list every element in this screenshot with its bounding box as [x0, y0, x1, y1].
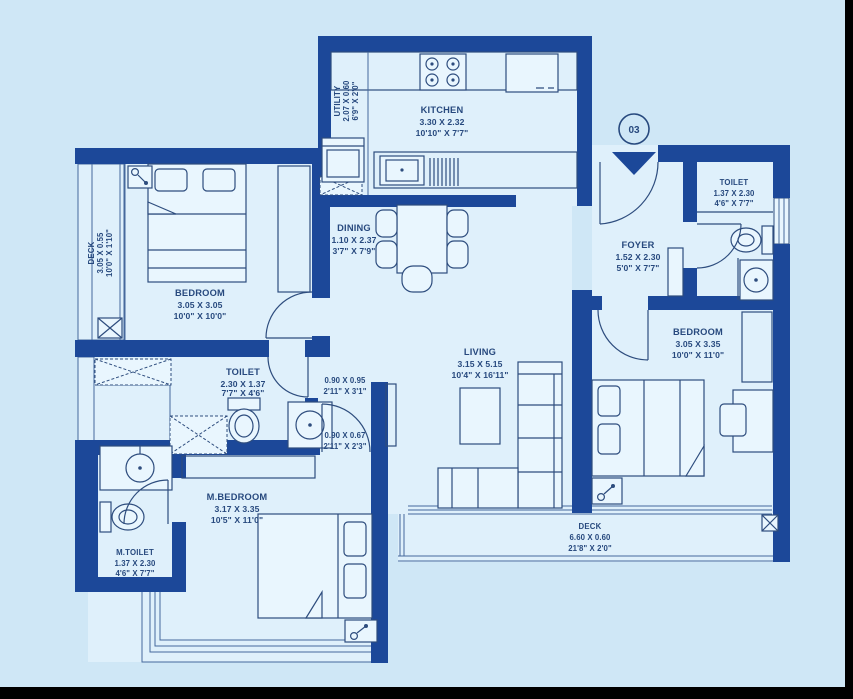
bed-icon	[148, 164, 246, 282]
label-dining: DINING 1.10 X 2.37 3'7" X 7'9"	[331, 223, 376, 256]
svg-text:M.TOILET: M.TOILET	[116, 548, 154, 557]
svg-text:BEDROOM: BEDROOM	[175, 288, 225, 298]
svg-text:1.37 X 2.30: 1.37 X 2.30	[714, 189, 756, 198]
wc-icon	[731, 226, 773, 254]
wc-icon	[228, 398, 260, 443]
wc-icon	[100, 502, 144, 532]
svg-text:6.60 X 0.60: 6.60 X 0.60	[570, 533, 612, 542]
svg-text:1.37 X 2.30: 1.37 X 2.30	[115, 559, 157, 568]
svg-text:6'9" X 2'0": 6'9" X 2'0"	[351, 81, 360, 120]
svg-text:UTILITY: UTILITY	[333, 85, 342, 116]
svg-text:TOILET: TOILET	[720, 178, 749, 187]
svg-text:10'0" X 1'10": 10'0" X 1'10"	[105, 229, 114, 277]
key-switch-icon	[128, 166, 152, 188]
washbasin-icon	[100, 446, 172, 490]
letterbox-bottom	[0, 687, 853, 699]
label-utility: UTILITY 2.07 X 0.60 6'9" X 2'0"	[333, 80, 360, 122]
svg-text:M.BEDROOM: M.BEDROOM	[207, 492, 268, 502]
unit-number: 03	[628, 125, 640, 136]
svg-text:FOYER: FOYER	[621, 240, 654, 250]
tv-unit-icon	[460, 388, 500, 444]
svg-text:2'11" X 2'3": 2'11" X 2'3"	[323, 442, 366, 451]
bed-icon	[258, 514, 372, 618]
label-toilet-mid: TOILET 2.30 X 1.37 7'7" X 4'6"	[220, 367, 265, 398]
svg-text:10'4" X 16'11": 10'4" X 16'11"	[451, 370, 508, 380]
svg-text:21'8" X 2'0": 21'8" X 2'0"	[568, 544, 612, 553]
svg-text:1.52 X 2.30: 1.52 X 2.30	[615, 252, 660, 262]
svg-text:3.05 X 3.05: 3.05 X 3.05	[177, 300, 222, 310]
key-switch-icon	[592, 478, 622, 504]
svg-text:2.07 X 0.60: 2.07 X 0.60	[342, 80, 351, 122]
svg-text:LIVING: LIVING	[464, 347, 496, 357]
toilet-right-window-icon	[774, 198, 789, 244]
floor-plan-canvas: 03	[0, 0, 853, 699]
svg-text:3.15 X 5.15: 3.15 X 5.15	[457, 359, 502, 369]
letterbox-right	[845, 0, 853, 699]
stove-icon	[420, 54, 466, 90]
label-bedroom-left: BEDROOM 3.05 X 3.05 10'0" X 10'0"	[174, 288, 227, 321]
svg-text:0.90 X 0.67: 0.90 X 0.67	[325, 431, 366, 440]
svg-text:7'7" X 4'6": 7'7" X 4'6"	[222, 388, 265, 398]
label-foyer: FOYER 1.52 X 2.30 5'0" X 7'7"	[615, 240, 660, 273]
svg-text:3'7" X 7'9": 3'7" X 7'9"	[333, 246, 376, 256]
svg-text:TOILET: TOILET	[226, 367, 260, 377]
floor-plan-svg: 03	[0, 0, 853, 699]
washing-machine-icon	[322, 138, 364, 182]
key-switch-icon	[345, 620, 377, 642]
svg-text:DECK: DECK	[87, 241, 96, 264]
label-bedroom-right: BEDROOM 3.05 X 3.35 10'0" X 11'0"	[672, 327, 724, 360]
svg-text:10'10" X 7'7": 10'10" X 7'7"	[416, 128, 469, 138]
svg-text:5'0" X 7'7": 5'0" X 7'7"	[617, 263, 660, 273]
svg-text:BEDROOM: BEDROOM	[673, 327, 723, 337]
svg-text:3.05 X 0.55: 3.05 X 0.55	[96, 232, 105, 274]
svg-text:10'5" X 11'0": 10'5" X 11'0"	[211, 515, 263, 525]
label-kitchen: KITCHEN 3.30 X 2.32 10'10" X 7'7"	[416, 105, 469, 138]
bed-icon	[592, 380, 704, 476]
svg-text:2'11" X 3'1": 2'11" X 3'1"	[323, 387, 366, 396]
svg-text:DECK: DECK	[579, 522, 602, 531]
svg-text:4'6" X 7'7": 4'6" X 7'7"	[714, 199, 753, 208]
kitchen-sink-icon	[380, 156, 458, 186]
svg-text:0.90 X 0.95: 0.90 X 0.95	[325, 376, 367, 385]
label-master-toilet: M.TOILET 1.37 X 2.30 4'6" X 7'7"	[115, 548, 157, 578]
svg-text:DINING: DINING	[337, 223, 371, 233]
svg-text:4'6" X 7'7": 4'6" X 7'7"	[115, 569, 154, 578]
label-master-bedroom: M.BEDROOM 3.17 X 3.35 10'5" X 11'0"	[207, 492, 268, 525]
svg-text:3.05 X 3.35: 3.05 X 3.35	[675, 339, 720, 349]
shoe-cabinet-icon	[668, 248, 683, 296]
svg-text:10'0" X 10'0": 10'0" X 10'0"	[174, 311, 227, 321]
svg-text:3.30 X 2.32: 3.30 X 2.32	[419, 117, 464, 127]
svg-text:1.10 X 2.37: 1.10 X 2.37	[331, 235, 376, 245]
washbasin-icon	[740, 260, 773, 300]
svg-text:KITCHEN: KITCHEN	[421, 105, 464, 115]
svg-text:10'0" X 11'0": 10'0" X 11'0"	[672, 350, 724, 360]
svg-text:3.17 X 3.35: 3.17 X 3.35	[214, 504, 259, 514]
fridge-icon	[506, 54, 558, 92]
